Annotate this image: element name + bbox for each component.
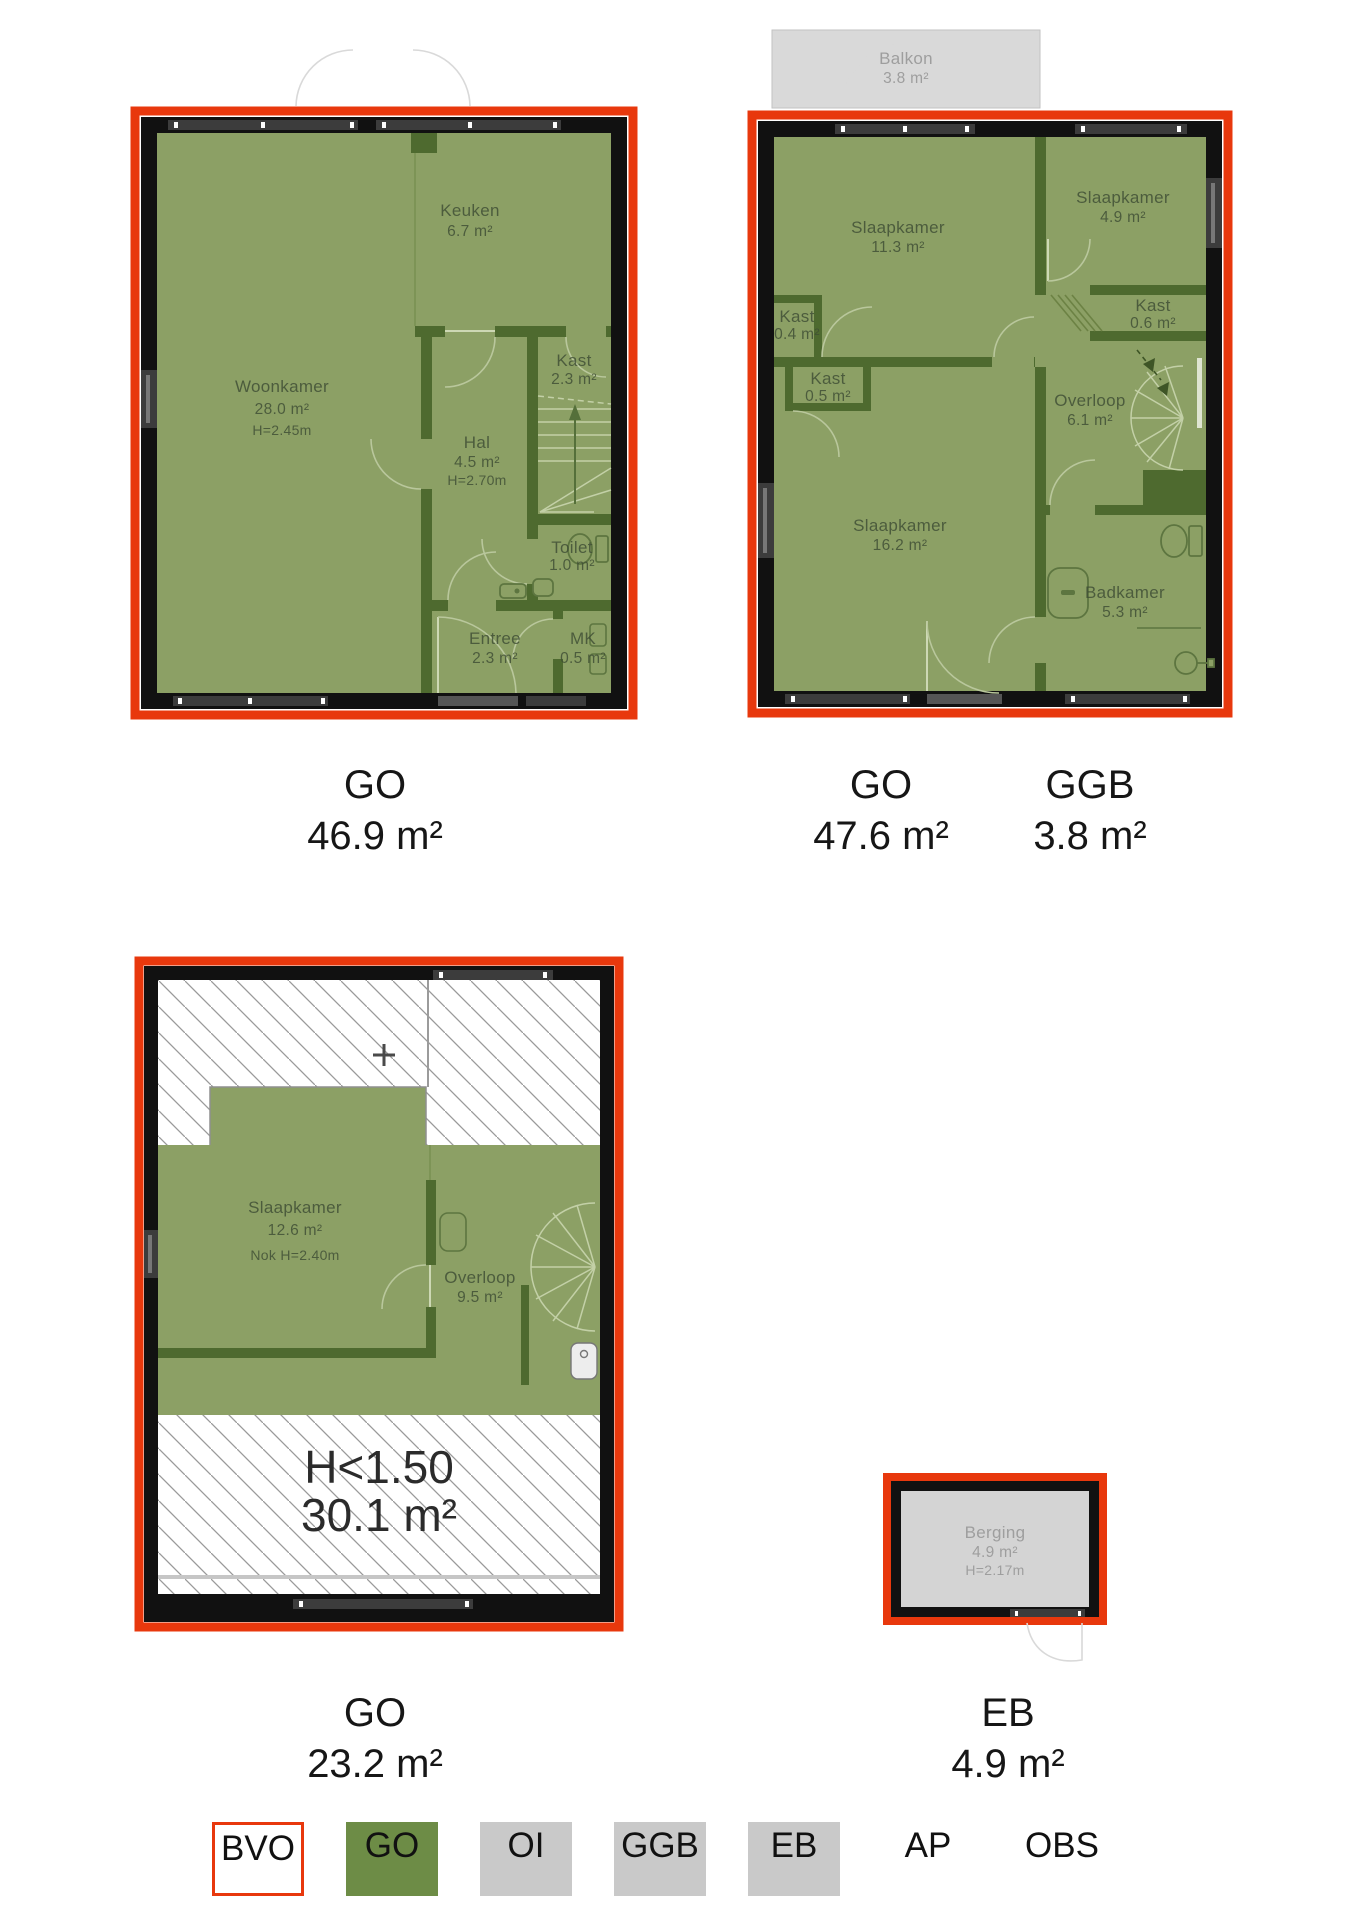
caption-storage: EB 4.9 m² xyxy=(858,1688,1158,1790)
balcony: Balkon3.8 m² xyxy=(772,30,1040,108)
legend-item-ap: AP xyxy=(882,1822,974,1896)
caption-area: 4.9 m² xyxy=(858,1739,1158,1790)
floor-plan-ground: Keuken6.7 m² Woonkamer28.0 m²H=2.45m Kas… xyxy=(128,44,640,722)
caption-attic: GO 23.2 m² xyxy=(225,1688,525,1790)
low-headroom-label: H<1.5030.1 m² xyxy=(301,1441,457,1541)
floor-plan-first: Balkon3.8 m² xyxy=(745,28,1235,722)
caption-code: GO xyxy=(225,1688,525,1739)
caption-ground: GO 46.9 m² xyxy=(225,760,525,862)
legend-item-oi: OI xyxy=(480,1822,572,1896)
door-strip xyxy=(1010,1609,1085,1617)
caption-first-ggb: GGB 3.8 m² xyxy=(940,760,1240,862)
caption-area: 23.2 m² xyxy=(225,1739,525,1790)
legend-item-bvo: BVO xyxy=(212,1822,304,1896)
legend-item-eb: EB xyxy=(748,1822,840,1896)
room-label-kast-06: Kast0.6 m² xyxy=(1130,296,1176,332)
floor-area-upper xyxy=(210,1087,426,1145)
caption-code: GGB xyxy=(940,760,1240,811)
room-label-toilet: Toilet1.0 m² xyxy=(549,538,595,574)
room-label-kast-05: Kast0.5 m² xyxy=(805,369,851,405)
legend-item-ggb: GGB xyxy=(614,1822,706,1896)
entry-door-arcs xyxy=(296,50,470,106)
floor-area xyxy=(158,1145,600,1415)
floor-plan-storage: Berging4.9 m²H=2.17m xyxy=(875,1465,1115,1675)
area-legend: BVO GO OI GGB EB AP OBS xyxy=(212,1822,1108,1896)
room-label-kast-04: Kast0.4 m² xyxy=(774,307,820,343)
caption-code: EB xyxy=(858,1688,1158,1739)
floor-plan-attic: Slaapkamer12.6 m²Nok H=2.40m Overloop9.5… xyxy=(133,955,625,1633)
room-label-berging: Berging4.9 m²H=2.17m xyxy=(965,1523,1026,1578)
door-arc xyxy=(1027,1623,1082,1661)
room-label-kast: Kast2.3 m² xyxy=(551,351,597,388)
legend-item-obs: OBS xyxy=(1016,1822,1108,1896)
caption-code: GO xyxy=(225,760,525,811)
caption-area: 46.9 m² xyxy=(225,811,525,862)
caption-area: 3.8 m² xyxy=(940,811,1240,862)
floorplan-sheet: Keuken6.7 m² Woonkamer28.0 m²H=2.45m Kas… xyxy=(0,0,1358,1920)
legend-item-go: GO xyxy=(346,1822,438,1896)
